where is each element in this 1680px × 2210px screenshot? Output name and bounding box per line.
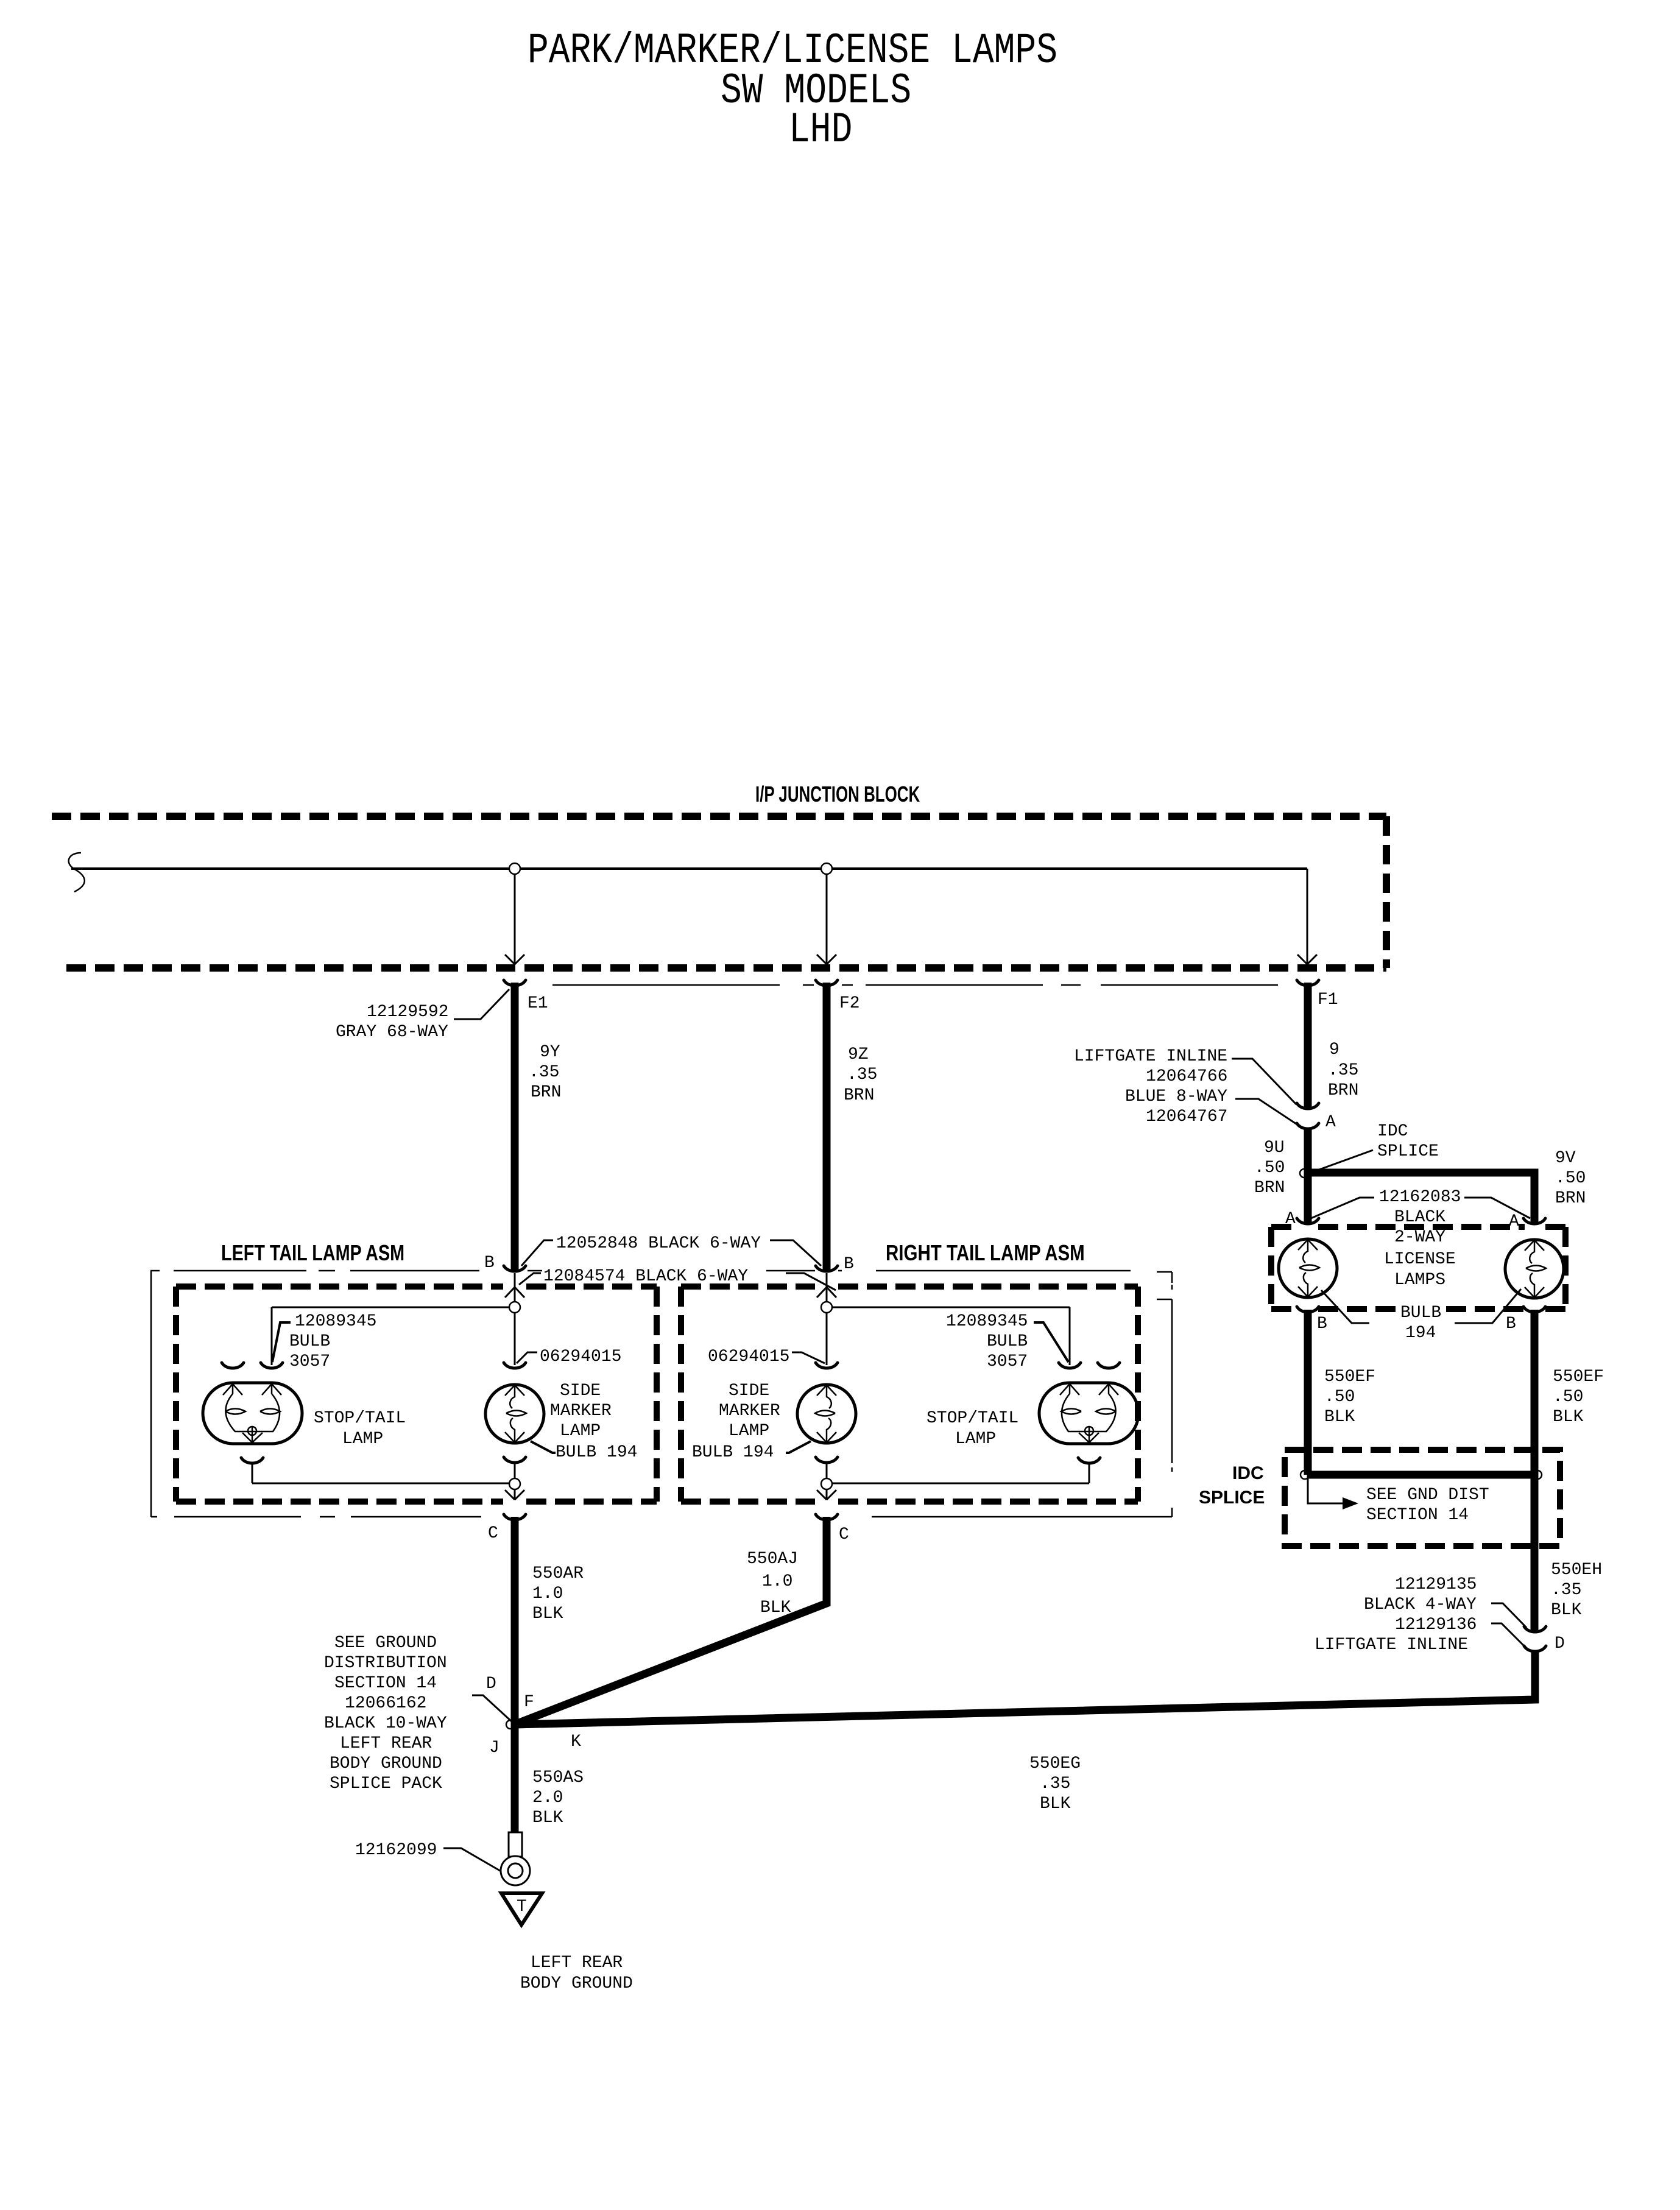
svg-text:550EF: 550EF bbox=[1553, 1368, 1604, 1386]
svg-text:LAMP: LAMP bbox=[342, 1430, 383, 1449]
svg-text:2-WAY: 2-WAY bbox=[1394, 1228, 1445, 1247]
svg-text:STOP/TAIL: STOP/TAIL bbox=[314, 1409, 406, 1428]
svg-text:BULB 194: BULB 194 bbox=[692, 1443, 774, 1462]
svg-text:LIFTGATE INLINE: LIFTGATE INLINE bbox=[1074, 1047, 1227, 1066]
svg-text:B: B bbox=[844, 1255, 854, 1274]
svg-text:LAMPS: LAMPS bbox=[1394, 1271, 1445, 1290]
svg-text:3057: 3057 bbox=[987, 1352, 1028, 1371]
svg-text:SPLICE: SPLICE bbox=[1199, 1488, 1265, 1508]
svg-text:B: B bbox=[1317, 1315, 1327, 1333]
svg-text:A: A bbox=[1325, 1113, 1336, 1132]
svg-text:1.0: 1.0 bbox=[762, 1572, 792, 1591]
svg-text:D: D bbox=[486, 1675, 496, 1693]
svg-text:550AS: 550AS bbox=[532, 1768, 584, 1787]
svg-text:LAMP: LAMP bbox=[729, 1422, 769, 1441]
svg-text:BLK: BLK bbox=[1324, 1408, 1355, 1427]
svg-text:BODY GROUND: BODY GROUND bbox=[330, 1754, 442, 1773]
svg-text:9: 9 bbox=[1329, 1040, 1339, 1059]
svg-text:LIFTGATE INLINE: LIFTGATE INLINE bbox=[1315, 1636, 1468, 1654]
svg-text:SIDE: SIDE bbox=[729, 1382, 769, 1400]
svg-text:GRAY 68-WAY: GRAY 68-WAY bbox=[336, 1023, 448, 1042]
svg-text:F1: F1 bbox=[1318, 990, 1338, 1009]
svg-text:T: T bbox=[517, 1898, 527, 1916]
svg-text:SEE GND DIST: SEE GND DIST bbox=[1366, 1486, 1489, 1505]
svg-text:SIDE: SIDE bbox=[560, 1382, 601, 1400]
svg-text:.50: .50 bbox=[1254, 1159, 1285, 1177]
svg-text:.50: .50 bbox=[1324, 1388, 1355, 1407]
svg-text:12162083: 12162083 bbox=[1379, 1188, 1461, 1207]
svg-text:9Z: 9Z bbox=[848, 1045, 869, 1064]
svg-text:550EH: 550EH bbox=[1551, 1561, 1602, 1580]
svg-text:IDC: IDC bbox=[1232, 1463, 1264, 1483]
svg-text:9U: 9U bbox=[1264, 1139, 1285, 1157]
svg-text:12129592: 12129592 bbox=[367, 1003, 448, 1022]
svg-text:BULB: BULB bbox=[1400, 1304, 1441, 1322]
svg-text:12084574 BLACK 6-WAY: 12084574 BLACK 6-WAY bbox=[543, 1267, 748, 1286]
svg-text:E1: E1 bbox=[528, 994, 548, 1013]
svg-text:C: C bbox=[839, 1525, 849, 1544]
svg-text:SEE GROUND: SEE GROUND bbox=[334, 1634, 437, 1653]
svg-text:12129135: 12129135 bbox=[1395, 1575, 1477, 1594]
svg-text:.50: .50 bbox=[1555, 1169, 1586, 1188]
svg-text:.35: .35 bbox=[847, 1065, 877, 1084]
svg-text:BULB: BULB bbox=[289, 1332, 330, 1351]
svg-text:194: 194 bbox=[1405, 1324, 1436, 1343]
svg-text:IDC: IDC bbox=[1377, 1122, 1408, 1141]
svg-text:BRN: BRN bbox=[531, 1083, 561, 1102]
svg-text:.35: .35 bbox=[1328, 1061, 1358, 1080]
svg-text:BLK: BLK bbox=[1553, 1408, 1584, 1427]
svg-text:BRN: BRN bbox=[1328, 1081, 1358, 1100]
svg-text:12066162: 12066162 bbox=[345, 1694, 426, 1713]
svg-text:550EF: 550EF bbox=[1324, 1368, 1375, 1386]
svg-text:SECTION 14: SECTION 14 bbox=[334, 1674, 437, 1693]
svg-text:SECTION 14: SECTION 14 bbox=[1366, 1506, 1469, 1525]
svg-text:550AR: 550AR bbox=[532, 1564, 584, 1583]
svg-text:9Y: 9Y bbox=[540, 1043, 560, 1062]
svg-text:2.0: 2.0 bbox=[532, 1788, 563, 1807]
svg-text:SPLICE PACK: SPLICE PACK bbox=[330, 1774, 442, 1793]
svg-text:1.0: 1.0 bbox=[532, 1584, 563, 1603]
svg-text:SPLICE: SPLICE bbox=[1377, 1142, 1439, 1161]
svg-text:.35: .35 bbox=[529, 1063, 559, 1082]
svg-text:12162099: 12162099 bbox=[355, 1841, 437, 1860]
svg-text:I/P JUNCTION BLOCK: I/P JUNCTION BLOCK bbox=[755, 782, 920, 807]
svg-text:LHD: LHD bbox=[789, 106, 852, 155]
svg-text:A: A bbox=[1509, 1212, 1519, 1231]
svg-text:C: C bbox=[488, 1524, 498, 1543]
svg-text:.35: .35 bbox=[1040, 1774, 1070, 1793]
svg-text:BLACK 4-WAY: BLACK 4-WAY bbox=[1364, 1595, 1477, 1614]
svg-text:9V: 9V bbox=[1555, 1149, 1576, 1168]
svg-text:.50: .50 bbox=[1553, 1388, 1583, 1407]
svg-text:STOP/TAIL: STOP/TAIL bbox=[926, 1409, 1018, 1428]
svg-text:LEFT TAIL LAMP ASM: LEFT TAIL LAMP ASM bbox=[221, 1240, 404, 1265]
svg-text:D: D bbox=[1555, 1634, 1565, 1653]
svg-text:B: B bbox=[1506, 1315, 1516, 1333]
svg-text:LAMP: LAMP bbox=[560, 1422, 601, 1441]
svg-text:J: J bbox=[489, 1739, 499, 1757]
svg-text:MARKER: MARKER bbox=[719, 1402, 780, 1421]
svg-text:BLK: BLK bbox=[532, 1809, 563, 1827]
svg-text:06294015: 06294015 bbox=[540, 1347, 621, 1366]
svg-text:LEFT REAR: LEFT REAR bbox=[531, 1954, 623, 1972]
svg-text:BLK: BLK bbox=[1040, 1795, 1071, 1813]
svg-text:LEFT REAR: LEFT REAR bbox=[340, 1734, 432, 1753]
svg-text:F: F bbox=[524, 1693, 534, 1712]
svg-text:BLUE 8-WAY: BLUE 8-WAY bbox=[1125, 1087, 1227, 1106]
svg-text:BLK: BLK bbox=[760, 1598, 791, 1617]
svg-text:3057: 3057 bbox=[289, 1352, 330, 1371]
svg-text:550AJ: 550AJ bbox=[747, 1550, 798, 1569]
svg-text:LAMP: LAMP bbox=[955, 1430, 996, 1449]
svg-text:12129136: 12129136 bbox=[1395, 1615, 1477, 1634]
svg-text:BRN: BRN bbox=[1555, 1189, 1586, 1208]
svg-text:B: B bbox=[484, 1254, 495, 1273]
svg-text:BODY GROUND: BODY GROUND bbox=[520, 1974, 633, 1993]
svg-text:F2: F2 bbox=[839, 994, 860, 1013]
svg-text:BULB: BULB bbox=[987, 1332, 1028, 1351]
svg-text:12064767: 12064767 bbox=[1146, 1107, 1227, 1126]
svg-text:12064766: 12064766 bbox=[1146, 1067, 1227, 1086]
svg-text:MARKER: MARKER bbox=[550, 1402, 612, 1421]
svg-text:12052848 BLACK 6-WAY: 12052848 BLACK 6-WAY bbox=[556, 1234, 761, 1253]
svg-text:BLACK 10-WAY: BLACK 10-WAY bbox=[324, 1714, 447, 1733]
svg-text:BLK: BLK bbox=[532, 1605, 563, 1623]
svg-text:06294015: 06294015 bbox=[708, 1347, 789, 1366]
svg-text:BULB 194: BULB 194 bbox=[556, 1443, 637, 1462]
svg-text:DISTRIBUTION: DISTRIBUTION bbox=[324, 1654, 447, 1673]
svg-text:RIGHT TAIL LAMP ASM: RIGHT TAIL LAMP ASM bbox=[886, 1240, 1085, 1265]
svg-text:K: K bbox=[571, 1732, 581, 1751]
svg-text:12089345: 12089345 bbox=[295, 1312, 376, 1331]
svg-text:550EG: 550EG bbox=[1029, 1754, 1081, 1773]
svg-text:BLK: BLK bbox=[1551, 1601, 1582, 1620]
svg-text:12089345: 12089345 bbox=[946, 1312, 1028, 1331]
svg-text:.35: .35 bbox=[1551, 1581, 1581, 1600]
svg-text:BRN: BRN bbox=[844, 1086, 874, 1105]
svg-text:BRN: BRN bbox=[1254, 1179, 1285, 1198]
svg-text:LICENSE: LICENSE bbox=[1384, 1250, 1456, 1269]
